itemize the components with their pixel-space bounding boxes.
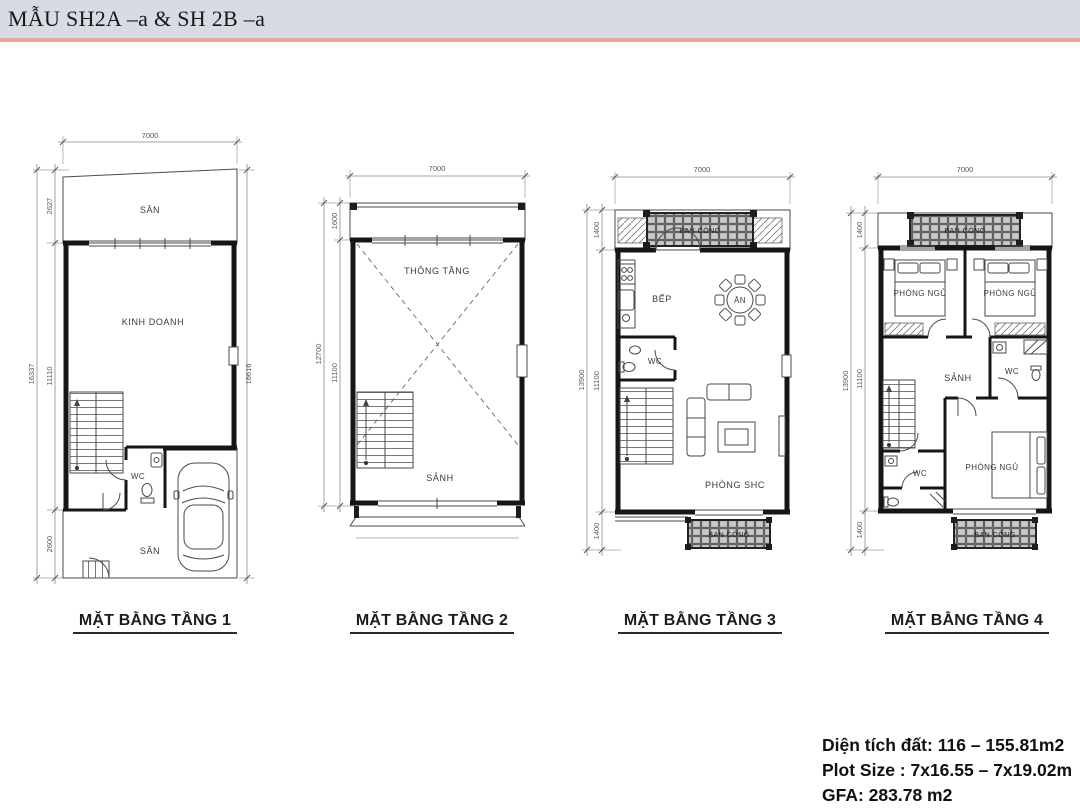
- dim-label: 12700: [314, 344, 323, 365]
- dim-label: 1400: [855, 522, 864, 539]
- dim-top: 7000: [58, 131, 242, 164]
- coffee-table-icon: [718, 422, 755, 452]
- tv-cabinet-icon: [779, 416, 785, 456]
- dim-top: 7000: [345, 164, 530, 198]
- dim-label: 11110: [45, 366, 54, 385]
- dim-right: 16616: [239, 164, 255, 584]
- dim-label: 1400: [855, 222, 864, 239]
- room-label-wc: WC: [913, 469, 927, 478]
- page-title: MẪU SH2A –a & SH 2B –a: [0, 0, 1080, 32]
- project-info: Diện tích đất: 116 – 155.81m2 Plot Size …: [822, 733, 1072, 808]
- window: [517, 345, 527, 377]
- room-label-dining: ĂN: [734, 296, 746, 305]
- room-label-void: THÔNG TẦNG: [404, 266, 470, 276]
- land-area-text: Diện tích đất: 116 – 155.81m2: [822, 733, 1072, 758]
- room-label-balcony: BAN CÔNG: [944, 226, 985, 235]
- floor-plan-1: 7000 2627 11110 2600 16337 16616 SÂN: [25, 120, 285, 620]
- plan-title-4: MẶT BẰNG TẦNG 4: [857, 612, 1077, 630]
- dim-left: 1400 11100 1400 13900: [577, 204, 621, 556]
- toilet-icon: [888, 498, 899, 506]
- kitchen: BẾP: [618, 260, 672, 328]
- dim-label: 1400: [592, 523, 601, 540]
- stove-icon: [618, 264, 635, 284]
- dim-label: 11100: [330, 363, 339, 383]
- stairs-icon: [620, 388, 673, 464]
- plan-title-text: MẶT BẰNG TẦNG 2: [350, 612, 514, 634]
- dim-label: 16616: [244, 364, 253, 385]
- car-icon: [174, 463, 233, 571]
- sink-icon: [623, 315, 630, 322]
- dim-label: 16337: [27, 364, 36, 385]
- balcony-top: [350, 203, 525, 240]
- plan-title-text: MẶT BẰNG TẦNG 1: [73, 612, 237, 634]
- stairs-icon: [357, 392, 413, 468]
- dim-width-label: 7000: [429, 164, 446, 173]
- sink-icon: [630, 346, 641, 354]
- wardrobe-icon: [995, 323, 1045, 335]
- plot-size-text: Plot Size : 7x16.55 – 7x19.02m: [822, 758, 1072, 783]
- balcony-top: BAN CÔNG: [615, 210, 790, 250]
- room-label-bedroom: PHÒNG NGỦ: [894, 289, 947, 298]
- room-label-balcony: BAN CÔNG: [679, 226, 720, 235]
- plan-title-text: MẶT BẰNG TẦNG 3: [618, 612, 782, 634]
- dim-label: 1400: [592, 222, 601, 239]
- room-label-balcony: BAN CÔNG: [708, 530, 749, 539]
- balcony-bottom: BAN CÔNG: [615, 517, 772, 550]
- wc-room: WC: [618, 337, 675, 380]
- room-label-bedroom: PHÒNG NGỦ: [966, 463, 1019, 472]
- toilet-icon: [1032, 370, 1040, 381]
- dim-left: 1400 11100 1400 13900: [841, 206, 884, 556]
- dim-width-label: 7000: [694, 165, 711, 174]
- bed-icon: [884, 259, 957, 316]
- sink-icon: [885, 456, 897, 466]
- plan-title-1: MẶT BẰNG TẦNG 1: [45, 612, 265, 630]
- dim-label: 1600: [330, 213, 339, 230]
- gfa-text: GFA: 283.78 m2: [822, 783, 1072, 808]
- dim-label: 11100: [592, 371, 601, 391]
- stairs-icon: [70, 392, 123, 473]
- wc-room-top: WC: [990, 337, 1049, 398]
- accent-divider: [0, 38, 1080, 42]
- room-label-yard-back: SÂN: [140, 546, 160, 556]
- room-label-hall: SẢNH: [944, 372, 971, 383]
- room-label-kitchen: BẾP: [652, 294, 672, 304]
- dim-top: 7000: [610, 165, 795, 204]
- dim-label: 13900: [577, 370, 586, 391]
- dim-label: 2600: [45, 536, 54, 553]
- title-bar: MẪU SH2A –a & SH 2B –a: [0, 0, 1080, 38]
- wardrobe-icon: [885, 323, 923, 335]
- balcony-bottom: BAN CÔNG: [951, 517, 1038, 550]
- room-label-wc: WC: [1005, 367, 1019, 376]
- room-label-family: PHÒNG SHC: [705, 480, 765, 490]
- wc-room: WC: [131, 453, 162, 503]
- plan-title-3: MẶT BẰNG TẦNG 3: [590, 612, 810, 630]
- room-label-wc: WC: [648, 357, 662, 366]
- room-label-yard: SÂN: [140, 205, 160, 215]
- floor-plan-2: 7000 1600 11100 12700 THÔNG TẦNG: [300, 140, 560, 620]
- floor-plan-4: 7000 1400 11100 1400 13900 BAN CÔNG: [840, 160, 1080, 630]
- gate: [83, 558, 109, 578]
- plan-title-2: MẶT BẰNG TẦNG 2: [322, 612, 542, 630]
- dim-width-label: 7000: [957, 165, 974, 174]
- dim-left: 1600 11100 12700: [314, 197, 356, 512]
- room-label-balcony: BAN CÔNG: [974, 530, 1015, 539]
- room-label-business: KINH DOANH: [122, 317, 185, 327]
- room-label-wc: WC: [131, 472, 145, 481]
- window: [782, 355, 791, 377]
- dim-label: 2627: [45, 198, 54, 215]
- front-yard: SÂN: [63, 169, 237, 243]
- room-label-hall: SẢNH: [426, 472, 453, 483]
- dining-table-icon: ĂN: [715, 275, 765, 325]
- dim-label: 11100: [855, 369, 864, 389]
- sofa-icon: [687, 384, 785, 456]
- fridge-icon: [619, 290, 634, 310]
- floor-plan-3: 7000 1400 11100 1400 13900 BAN CÔNG: [575, 160, 835, 630]
- dim-label: 13900: [841, 371, 850, 392]
- toilet-icon: [142, 484, 152, 497]
- stairs-icon: [883, 380, 915, 448]
- dim-width-label: 7000: [142, 131, 159, 140]
- canopy: [350, 506, 525, 538]
- sink-icon: [151, 453, 162, 467]
- balcony-top: BAN CÔNG: [878, 212, 1052, 248]
- walls: [615, 228, 791, 515]
- bed-icon: [974, 259, 1047, 316]
- plan-title-text: MẶT BẰNG TẦNG 4: [885, 612, 1049, 634]
- room-label-bedroom: PHÒNG NGỦ: [984, 289, 1037, 298]
- toilet-icon: [623, 363, 635, 372]
- sink-icon: [993, 342, 1006, 353]
- dim-top: 7000: [873, 165, 1057, 204]
- window: [229, 347, 238, 365]
